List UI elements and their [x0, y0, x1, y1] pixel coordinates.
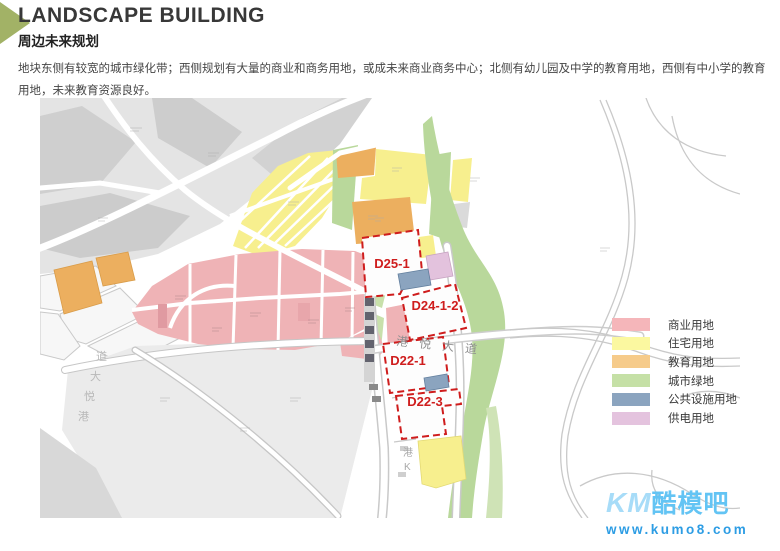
- watermark-url[interactable]: www.kumo8.com: [606, 522, 776, 537]
- legend-label: 供电用地: [668, 410, 714, 426]
- legend-label: 住宅用地: [668, 335, 714, 351]
- legend-item-commercial: 商业用地: [612, 318, 737, 331]
- legend-label: 公共设施用地: [668, 391, 737, 407]
- legend-swatch-public-facility: [612, 393, 650, 406]
- map-legend: 商业用地 住宅用地 教育用地 城市绿地 公共设施用地 供电用地: [612, 318, 737, 430]
- legend-label: 教育用地: [668, 354, 714, 370]
- parcel-label-d22-1: D22-1: [390, 353, 425, 368]
- road-label-gang-k: 港 K: [403, 447, 413, 473]
- legend-label: 城市绿地: [668, 373, 714, 389]
- description-text: 地块东侧有较宽的城市绿化带；西侧规划有大量的商业和商务用地，或成未来商业商务中心…: [18, 58, 766, 102]
- parcel-label-d22-3: D22-3: [407, 394, 442, 409]
- svg-text:K: K: [404, 462, 411, 473]
- planning-map: 港悦大道 道 大 悦 港 港 K D25-1 D24-1-2 D22-1 D22…: [40, 98, 740, 518]
- legend-item-power-supply: 供电用地: [612, 411, 737, 424]
- parcel-label-d25-1: D25-1: [374, 256, 409, 271]
- svg-text:港: 港: [403, 447, 413, 459]
- slide-page: LANDSCAPE BUILDING 周边未来规划 地块东侧有较宽的城市绿化带；…: [0, 0, 780, 551]
- legend-label: 商业用地: [668, 317, 714, 333]
- legend-swatch-commercial: [612, 318, 650, 331]
- legend-item-green-space: 城市绿地: [612, 374, 737, 387]
- page-title: LANDSCAPE BUILDING: [18, 4, 265, 28]
- legend-item-residential: 住宅用地: [612, 337, 737, 350]
- residential-parcel-south: [418, 436, 466, 488]
- legend-swatch-education: [612, 355, 650, 368]
- svg-text:道: 道: [96, 349, 107, 363]
- legend-swatch-green-space: [612, 374, 650, 387]
- watermark-logo: KM酷模吧: [606, 484, 776, 520]
- site-watermark: KM酷模吧 www.kumo8.com: [606, 484, 776, 537]
- legend-item-education: 教育用地: [612, 355, 737, 368]
- svg-text:悦: 悦: [84, 389, 95, 403]
- page-subtitle: 周边未来规划: [18, 30, 99, 50]
- watermark-logo-latin: KM: [606, 487, 652, 518]
- svg-text:大: 大: [90, 369, 101, 383]
- legend-item-public-facility: 公共设施用地: [612, 393, 737, 406]
- watermark-logo-cjk: 酷模吧: [652, 490, 730, 518]
- legend-swatch-residential: [612, 337, 650, 350]
- legend-swatch-power-supply: [612, 412, 650, 425]
- parcel-label-d24-1-2: D24-1-2: [412, 298, 459, 313]
- svg-text:港: 港: [78, 410, 89, 423]
- planning-map-container: 港悦大道 道 大 悦 港 港 K D25-1 D24-1-2 D22-1 D22…: [40, 98, 740, 518]
